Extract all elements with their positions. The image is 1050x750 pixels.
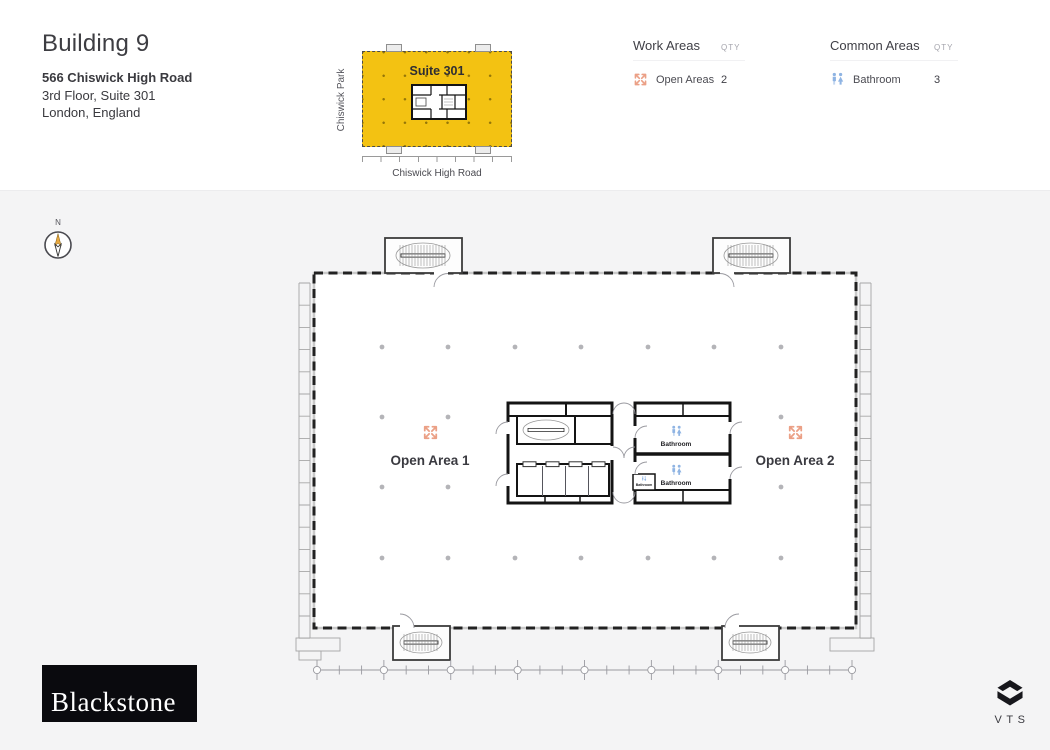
stairwell-top-right bbox=[713, 238, 790, 273]
minimap-stair-bump bbox=[475, 44, 491, 52]
north-label: N bbox=[43, 218, 73, 227]
header: Building 9 566 Chiswick High Road 3rd Fl… bbox=[0, 0, 1050, 191]
open-area-1-marker: Open Area 1 bbox=[370, 424, 490, 468]
vts-wordmark: VTS bbox=[986, 714, 1034, 726]
legend-title: Common Areas bbox=[830, 38, 920, 53]
expand-arrows-icon bbox=[633, 72, 648, 87]
restroom-icon bbox=[830, 72, 845, 87]
open-area-label: Open Area 1 bbox=[390, 453, 469, 468]
qty-header: QTY bbox=[934, 43, 958, 52]
building-title: Building 9 bbox=[42, 30, 192, 58]
legend-title: Work Areas bbox=[633, 38, 700, 53]
legend-item-qty: 3 bbox=[934, 74, 958, 86]
minimap-suite-label: Suite 301 bbox=[363, 64, 511, 78]
vts-mark-icon bbox=[992, 680, 1028, 707]
minimap-scale-bar bbox=[362, 156, 512, 162]
compass-rose-icon bbox=[43, 230, 73, 260]
open-area-label: Open Area 2 bbox=[755, 453, 834, 468]
vts-logo: VTS bbox=[986, 680, 1034, 726]
minimap-street-bottom: Chiswick High Road bbox=[362, 168, 512, 179]
open-area-2-marker: Open Area 2 bbox=[735, 424, 855, 468]
minimap-street-left: Chiswick Park bbox=[336, 50, 350, 150]
blackstone-logo: Blackstone bbox=[42, 665, 197, 722]
minimap-stair-bump bbox=[475, 146, 491, 154]
restroom-icon bbox=[670, 464, 683, 477]
floor-suite: 3rd Floor, Suite 301 bbox=[42, 87, 192, 105]
expand-arrows-icon bbox=[787, 424, 804, 441]
legend-item-open-areas: Open Areas 2 bbox=[633, 72, 745, 87]
bathroom-label: Bathroom bbox=[646, 441, 706, 448]
minimap-stair-bump bbox=[386, 44, 402, 52]
compass: N bbox=[43, 218, 73, 265]
legend-item-label: Bathroom bbox=[853, 74, 934, 86]
restroom-icon bbox=[641, 476, 647, 482]
minimap: Suite 301 bbox=[362, 51, 512, 147]
bathroom-label: Bathroom bbox=[629, 483, 659, 487]
legend-common-areas: Common Areas QTY Bathroom 3 bbox=[830, 38, 958, 87]
expand-arrows-icon bbox=[422, 424, 439, 441]
qty-header: QTY bbox=[721, 43, 745, 52]
minimap-core-plan bbox=[411, 84, 467, 120]
city: London, England bbox=[42, 104, 192, 122]
stairwell-top-left bbox=[385, 238, 462, 273]
legend-item-bathroom: Bathroom 3 bbox=[830, 72, 958, 87]
street-address: 566 Chiswick High Road bbox=[42, 69, 192, 87]
minimap-stair-bump bbox=[386, 146, 402, 154]
legend-item-label: Open Areas bbox=[656, 74, 721, 86]
legend-item-qty: 2 bbox=[721, 74, 745, 86]
legend-work-areas: Work Areas QTY Open Areas 2 bbox=[633, 38, 745, 87]
restroom-icon bbox=[670, 425, 683, 438]
blackstone-wordmark: Blackstone bbox=[51, 687, 176, 718]
address-block: Building 9 566 Chiswick High Road 3rd Fl… bbox=[42, 30, 192, 122]
